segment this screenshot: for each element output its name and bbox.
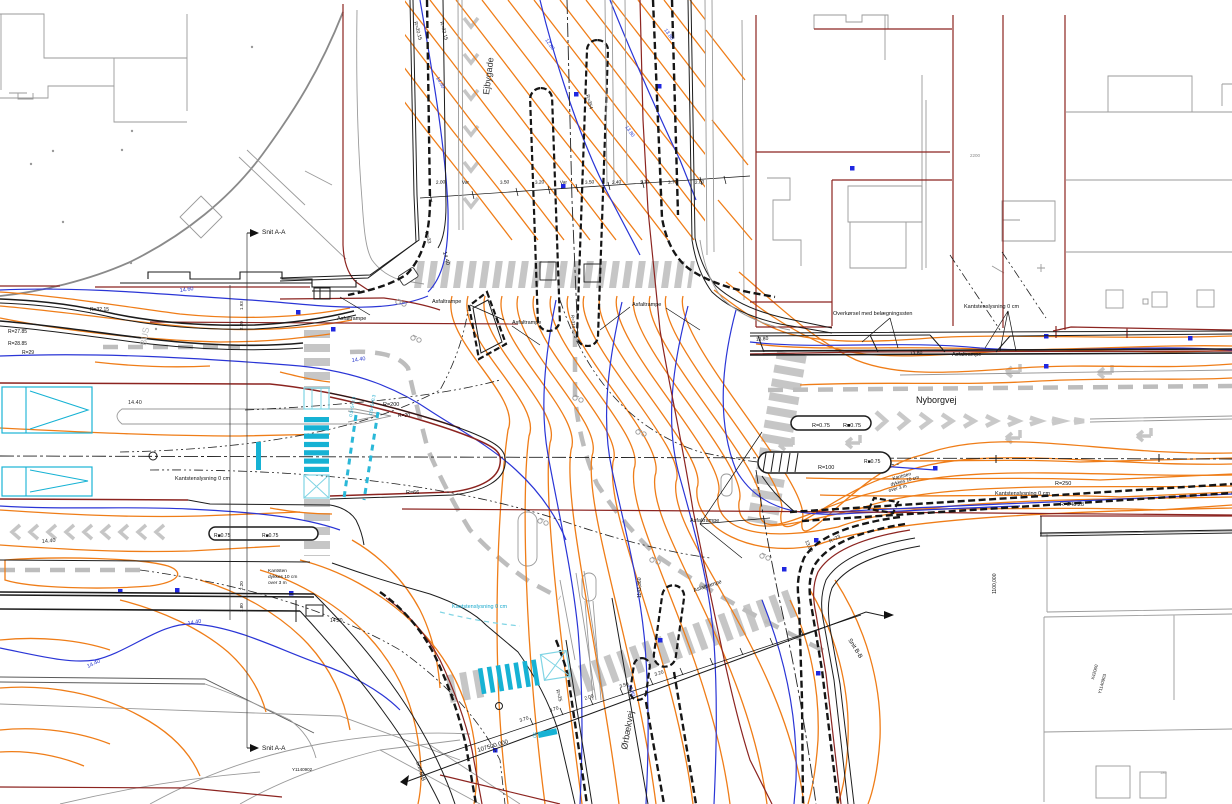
svg-text:Kantstenslysning 0 cm: Kantstenslysning 0 cm — [995, 491, 1050, 497]
svg-text:R=32.15: R=32.15 — [90, 307, 109, 313]
svg-text:2.20: 2.20 — [239, 581, 244, 590]
svg-text:R■0.75: R■0.75 — [843, 423, 861, 429]
svg-text:Kantstenslysning 0 cm: Kantstenslysning 0 cm — [452, 604, 507, 610]
svg-text:3.50: 3.50 — [500, 179, 510, 186]
svg-text:R=28.85: R=28.85 — [8, 341, 27, 347]
svg-text:Var: Var — [560, 179, 568, 186]
svg-text:3.70: 3.70 — [640, 179, 650, 186]
svg-text:1143,360: 1143,360 — [637, 577, 643, 598]
svg-text:Snit A-A: Snit A-A — [262, 229, 286, 236]
svg-text:Var: Var — [462, 179, 470, 186]
svg-text:R■0.75: R■0.75 — [262, 533, 279, 539]
svg-text:2.20: 2.20 — [239, 321, 244, 330]
svg-text:1100,000: 1100,000 — [992, 573, 998, 594]
svg-text:R=250: R=250 — [1055, 481, 1071, 487]
svg-text:R=200: R=200 — [383, 402, 399, 408]
svg-text:3.20: 3.20 — [535, 179, 545, 186]
svg-text:3.50: 3.50 — [585, 179, 595, 186]
svg-text:Y1140902: Y1140902 — [292, 767, 313, 772]
svg-text:14.40: 14.40 — [42, 538, 56, 545]
svg-text:Asfaltrampe: Asfaltrampe — [512, 320, 541, 326]
svg-text:R=66: R=66 — [406, 490, 419, 496]
svg-text:1.80: 1.80 — [239, 603, 244, 612]
svg-text:Overkørsel med belægningssten: Overkørsel med belægningssten — [833, 311, 912, 317]
svg-text:2200: 2200 — [970, 153, 981, 158]
svg-text:Kantstenslysning 0 cm: Kantstenslysning 0 cm — [175, 476, 230, 482]
svg-text:13.80: 13.80 — [756, 336, 769, 343]
svg-text:Asfaltrampe: Asfaltrampe — [337, 316, 366, 322]
svg-text:Asfaltrampe: Asfaltrampe — [632, 302, 661, 308]
svg-text:R=29: R=29 — [22, 350, 34, 356]
svg-text:Asfaltrampe: Asfaltrampe — [690, 518, 719, 524]
svg-text:2.00: 2.00 — [695, 179, 705, 186]
svg-text:Kantsten: Kantsten — [268, 568, 287, 574]
svg-text:R=248.28: R=248.28 — [1060, 502, 1084, 508]
svg-text:Snit A-A: Snit A-A — [262, 745, 286, 752]
svg-text:2.40: 2.40 — [612, 179, 622, 186]
svg-text:dykkes 10 cm: dykkes 10 cm — [268, 574, 297, 580]
svg-text:Asfaltrampe: Asfaltrampe — [432, 299, 461, 305]
svg-text:R=0.75: R=0.75 — [812, 423, 830, 429]
svg-text:over 3 m: over 3 m — [268, 580, 287, 586]
svg-text:R■0.75: R■0.75 — [864, 459, 881, 465]
svg-text:13.80: 13.80 — [910, 350, 923, 357]
svg-text:R=100: R=100 — [818, 465, 834, 471]
svg-text:14.20: 14.20 — [330, 618, 343, 624]
svg-text:Nyborgvej: Nyborgvej — [916, 395, 957, 405]
svg-text:1.93: 1.93 — [239, 301, 244, 310]
svg-text:R=20: R=20 — [398, 413, 410, 419]
svg-text:Kantstenslysning 0 cm: Kantstenslysning 0 cm — [964, 304, 1019, 310]
svg-text:Asfaltrampe: Asfaltrampe — [952, 352, 981, 358]
svg-text:14.40: 14.40 — [128, 400, 142, 406]
svg-text:3.70: 3.70 — [668, 179, 678, 186]
svg-text:180: 180 — [1160, 770, 1167, 775]
svg-text:R=27.85: R=27.85 — [8, 329, 27, 335]
svg-text:2.00: 2.00 — [436, 179, 446, 186]
svg-text:R■0.75: R■0.75 — [214, 533, 231, 539]
